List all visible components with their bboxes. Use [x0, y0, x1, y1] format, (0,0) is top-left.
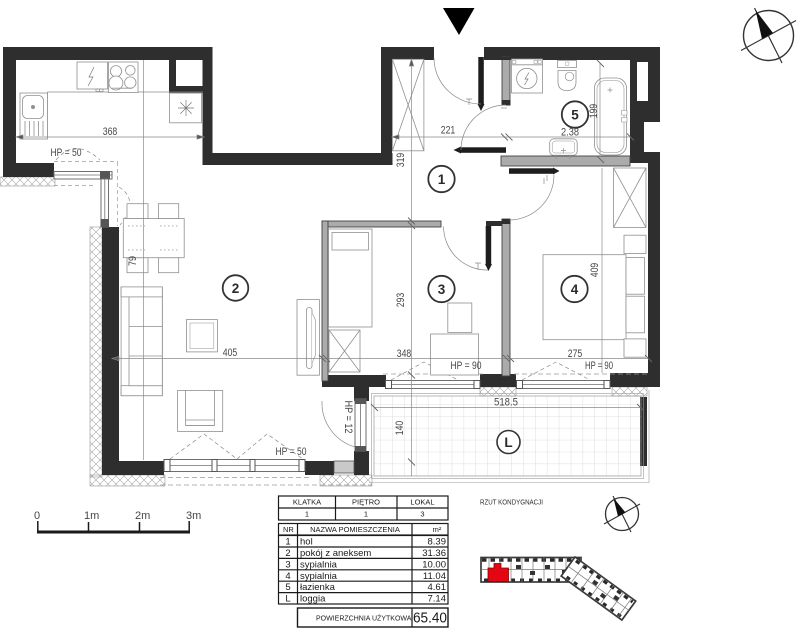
svg-text:3m: 3m	[186, 510, 201, 522]
svg-text:4: 4	[571, 282, 579, 297]
svg-text:PIĘTRO: PIĘTRO	[352, 498, 380, 507]
svg-text:2m: 2m	[135, 510, 150, 522]
svg-text:4: 4	[285, 571, 290, 582]
svg-text:518.5: 518.5	[494, 397, 518, 409]
svg-text:409: 409	[589, 263, 601, 278]
svg-text:1m: 1m	[84, 510, 99, 522]
svg-text:LOKAL: LOKAL	[410, 498, 434, 507]
svg-text:5: 5	[571, 108, 579, 123]
svg-text:1: 1	[438, 172, 446, 187]
svg-text:65.40: 65.40	[413, 611, 447, 627]
svg-text:2: 2	[285, 548, 290, 559]
svg-text:405: 405	[223, 347, 238, 359]
svg-text:10.00: 10.00	[422, 559, 446, 570]
svg-text:HP = 50: HP = 50	[276, 446, 307, 458]
svg-text:275: 275	[568, 348, 583, 360]
svg-text:368: 368	[103, 126, 118, 138]
svg-text:221: 221	[441, 125, 456, 137]
svg-text:1: 1	[285, 537, 290, 548]
svg-text:8.39: 8.39	[428, 537, 447, 548]
svg-text:loggia: loggia	[300, 594, 326, 605]
svg-text:293: 293	[395, 293, 407, 308]
svg-text:3: 3	[420, 510, 424, 519]
svg-text:4.61: 4.61	[428, 582, 447, 593]
svg-text:1: 1	[364, 510, 368, 519]
svg-text:HP = 50: HP = 50	[51, 147, 82, 159]
svg-text:319: 319	[395, 153, 407, 168]
svg-text:NAZWA POMIESZCZENIA: NAZWA POMIESZCZENIA	[310, 525, 400, 534]
svg-text:sypialnia: sypialnia	[300, 559, 338, 570]
svg-text:KLATKA: KLATKA	[293, 498, 321, 507]
svg-text:7.14: 7.14	[428, 594, 447, 605]
svg-text:L: L	[285, 594, 290, 605]
svg-text:79: 79	[127, 256, 139, 266]
svg-text:199: 199	[588, 104, 600, 119]
svg-text:hol: hol	[300, 537, 313, 548]
svg-text:HP = 12: HP = 12	[342, 401, 354, 434]
svg-text:łazienka: łazienka	[300, 582, 336, 593]
svg-text:m²: m²	[433, 525, 442, 534]
svg-text:L: L	[504, 435, 512, 450]
svg-text:POWIERZCHNIA UŻYTKOWA: POWIERZCHNIA UŻYTKOWA	[316, 614, 412, 623]
svg-text:3: 3	[285, 559, 290, 570]
svg-text:RZUT KONDYGNACJI: RZUT KONDYGNACJI	[480, 500, 543, 507]
svg-text:HP = 90: HP = 90	[585, 360, 613, 372]
svg-text:1: 1	[305, 510, 309, 519]
svg-text:HP = 90: HP = 90	[451, 360, 482, 372]
svg-text:3: 3	[438, 282, 446, 297]
svg-text:0: 0	[34, 510, 40, 522]
svg-text:140: 140	[394, 421, 406, 436]
svg-text:2: 2	[232, 281, 240, 296]
svg-text:31.36: 31.36	[422, 548, 446, 559]
svg-text:NR: NR	[283, 525, 294, 534]
svg-text:348: 348	[397, 348, 412, 360]
svg-text:sypialnia: sypialnia	[300, 571, 338, 582]
svg-text:11.04: 11.04	[423, 571, 446, 582]
svg-text:5: 5	[285, 582, 290, 593]
svg-text:pokój z aneksem: pokój z aneksem	[300, 548, 371, 559]
